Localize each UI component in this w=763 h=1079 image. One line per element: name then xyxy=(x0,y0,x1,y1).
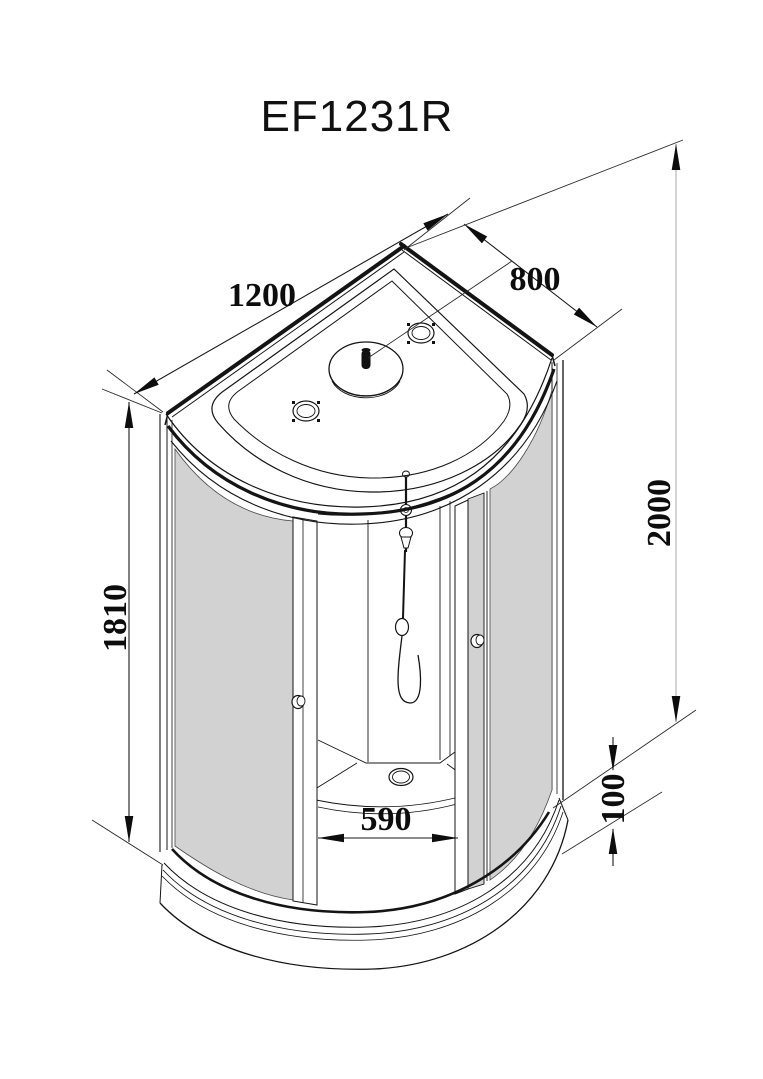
right-door-glass xyxy=(468,493,484,889)
right-wall-edge xyxy=(552,360,563,800)
dimension-width-1200: 1200 xyxy=(107,198,470,412)
handset-head xyxy=(396,619,409,636)
door-handle-left xyxy=(292,696,305,709)
dimension-depth-800: 800 xyxy=(461,221,622,360)
shower-cabin-dimension-diagram: EF1231R xyxy=(0,0,763,1079)
right-door-stile xyxy=(455,500,468,894)
ventilation-grille-2 xyxy=(292,401,320,422)
dimension-opening-590: 590 xyxy=(318,801,458,842)
handset-handle xyxy=(403,550,405,618)
technical-drawing-page: EF1231R xyxy=(0,0,763,1079)
cabin-interior xyxy=(312,471,472,814)
drain xyxy=(389,769,413,786)
roof-dome xyxy=(329,342,403,398)
dim-label-590: 590 xyxy=(361,801,412,838)
left-door-stile xyxy=(293,517,317,905)
left-wall-edge xyxy=(160,414,172,852)
ventilation-grille-1 xyxy=(407,323,435,344)
door-handle-right xyxy=(471,635,484,648)
dim-label-800: 800 xyxy=(510,261,561,298)
tray-corner-cut-left xyxy=(312,763,357,791)
left-glass-panel xyxy=(175,449,293,900)
dome-knob xyxy=(362,350,371,369)
model-title: EF1231R xyxy=(261,92,454,141)
roof xyxy=(165,244,557,524)
wall-floor-junction xyxy=(318,740,455,763)
dim-label-1810: 1810 xyxy=(97,584,134,652)
dim-label-100: 100 xyxy=(595,774,632,825)
dim-label-1200: 1200 xyxy=(228,277,296,314)
dimension-tray-height-100: 100 xyxy=(562,737,662,866)
dim-label-2000: 2000 xyxy=(641,479,678,547)
shower-hose xyxy=(398,636,421,703)
dimension-glass-height-1810: 1810 xyxy=(92,389,163,865)
